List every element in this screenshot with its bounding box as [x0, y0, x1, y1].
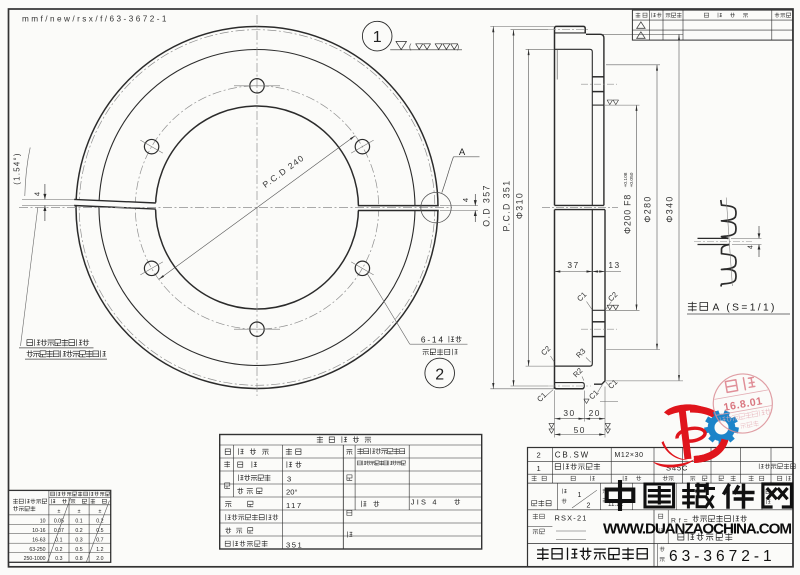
svg-text:1: 1 — [578, 492, 582, 499]
svg-text:JIS 4: JIS 4 — [411, 498, 439, 507]
svg-text:16-63: 16-63 — [32, 537, 45, 543]
svg-text:Φ200 F8: Φ200 F8 — [622, 194, 632, 234]
svg-text:0.7: 0.7 — [96, 537, 103, 543]
svg-text:0.1: 0.1 — [75, 518, 82, 524]
svg-text:0.5: 0.5 — [75, 547, 82, 553]
svg-text:RSX-21: RSX-21 — [555, 513, 588, 522]
svg-text:2: 2 — [537, 451, 541, 460]
svg-text:P.C.D 351: P.C.D 351 — [502, 179, 512, 231]
svg-text:250-1000: 250-1000 — [24, 556, 46, 562]
svg-text:4: 4 — [748, 245, 755, 249]
svg-text:37: 37 — [567, 260, 579, 270]
svg-text:A: A — [459, 147, 466, 158]
svg-text:Φ310: Φ310 — [514, 192, 524, 219]
svg-text:A (S=1/1): A (S=1/1) — [713, 303, 777, 314]
svg-text:6-14: 6-14 — [421, 335, 445, 345]
svg-text:0.2: 0.2 — [75, 528, 82, 534]
svg-text:4: 4 — [461, 198, 470, 202]
svg-text:10: 10 — [40, 518, 46, 524]
svg-text:+0.108: +0.108 — [623, 172, 629, 187]
svg-text:O.D 357: O.D 357 — [481, 184, 491, 227]
svg-text:0.1: 0.1 — [55, 537, 62, 543]
svg-text:63-250: 63-250 — [29, 547, 45, 553]
svg-text:0.3: 0.3 — [55, 556, 62, 562]
svg-text:Φ280: Φ280 — [643, 195, 653, 222]
svg-text:+0.050: +0.050 — [629, 172, 635, 187]
svg-text:30: 30 — [563, 408, 575, 418]
svg-text:3: 3 — [287, 474, 291, 483]
svg-text:1.2: 1.2 — [96, 547, 103, 553]
svg-text:1: 1 — [537, 464, 541, 473]
svg-text:63-3672-1: 63-3672-1 — [669, 548, 776, 565]
svg-text:117: 117 — [286, 501, 303, 510]
svg-text:20°: 20° — [286, 488, 297, 497]
svg-text:0.3: 0.3 — [75, 537, 82, 543]
svg-text:2: 2 — [587, 503, 591, 510]
svg-text:20: 20 — [589, 408, 601, 418]
svg-text:mmf/new/rsx/f/63-3672-1: mmf/new/rsx/f/63-3672-1 — [22, 15, 169, 24]
svg-text:±: ± — [57, 509, 60, 515]
svg-text:2.0: 2.0 — [96, 556, 103, 562]
svg-text:50: 50 — [574, 425, 586, 435]
svg-text:WWW.DUANZAOCHINA.COM: WWW.DUANZAOCHINA.COM — [603, 521, 792, 538]
svg-text:0.8: 0.8 — [75, 556, 82, 562]
svg-text:CB.SW: CB.SW — [555, 451, 590, 460]
svg-text:±: ± — [78, 509, 81, 515]
svg-text:2: 2 — [435, 367, 444, 384]
svg-text:(1.54°): (1.54°) — [13, 152, 22, 185]
svg-text:10-16: 10-16 — [32, 528, 45, 534]
svg-text:13: 13 — [608, 260, 620, 270]
svg-text:351: 351 — [286, 541, 303, 550]
svg-text:Φ340: Φ340 — [664, 195, 674, 222]
svg-text:1: 1 — [373, 29, 382, 46]
svg-text:0.2: 0.2 — [55, 547, 62, 553]
svg-text:): ) — [457, 42, 459, 51]
svg-text:±: ± — [98, 509, 101, 515]
svg-text:M12×30: M12×30 — [615, 452, 644, 459]
svg-text:4: 4 — [33, 192, 42, 196]
